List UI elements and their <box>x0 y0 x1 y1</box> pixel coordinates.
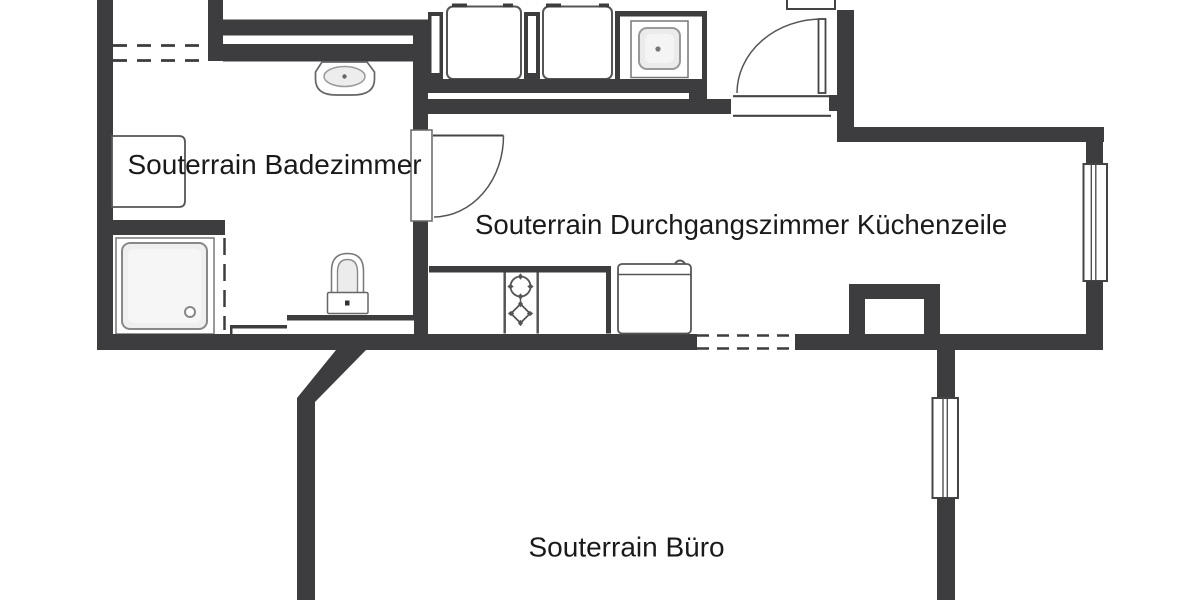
svg-text:Souterrain Büro: Souterrain Büro <box>529 532 725 563</box>
svg-text:Souterrain Badezimmer: Souterrain Badezimmer <box>128 149 422 180</box>
svg-text:Souterrain Durchgangszimmer Kü: Souterrain Durchgangszimmer Küchenzeile <box>475 209 1007 240</box>
